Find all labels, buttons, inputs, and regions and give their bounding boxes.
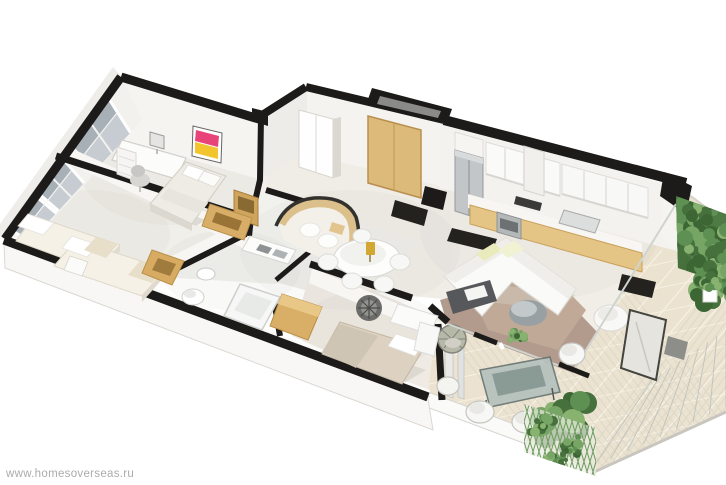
svg-text:www.homesoverseas.ru: www.homesoverseas.ru	[5, 468, 134, 480]
